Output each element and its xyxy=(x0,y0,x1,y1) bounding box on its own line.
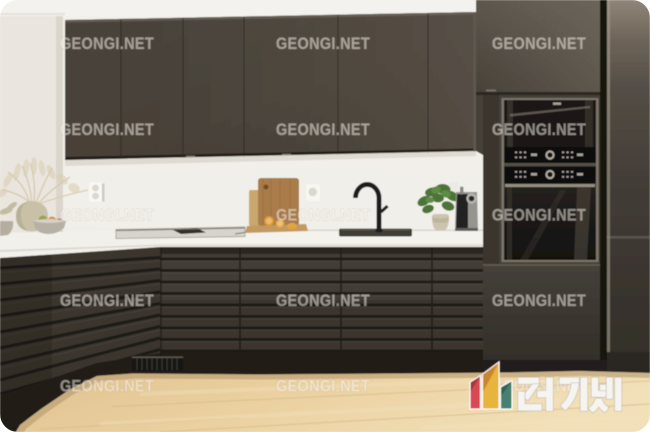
svg-text:GEONGI.NET: GEONGI.NET xyxy=(492,292,586,310)
svg-text:GEONGI.NET: GEONGI.NET xyxy=(276,206,370,224)
svg-text:GEONGI.NET: GEONGI.NET xyxy=(492,35,586,53)
svg-text:GEONGI.NET: GEONGI.NET xyxy=(492,206,586,224)
svg-text:GEONGI.NET: GEONGI.NET xyxy=(60,35,154,53)
svg-text:GEONGI.NET: GEONGI.NET xyxy=(60,206,154,224)
svg-text:GEONGI.NET: GEONGI.NET xyxy=(276,35,370,53)
svg-text:GEONGI.NET: GEONGI.NET xyxy=(276,377,370,395)
svg-text:GEONGI.NET: GEONGI.NET xyxy=(492,121,586,139)
svg-text:GEONGI.NET: GEONGI.NET xyxy=(60,377,154,395)
svg-text:GEONGI.NET: GEONGI.NET xyxy=(60,121,154,139)
svg-text:GEONGI.NET: GEONGI.NET xyxy=(60,292,154,310)
svg-text:GEONGI.NET: GEONGI.NET xyxy=(276,121,370,139)
svg-text:GEONGI.NET: GEONGI.NET xyxy=(276,292,370,310)
